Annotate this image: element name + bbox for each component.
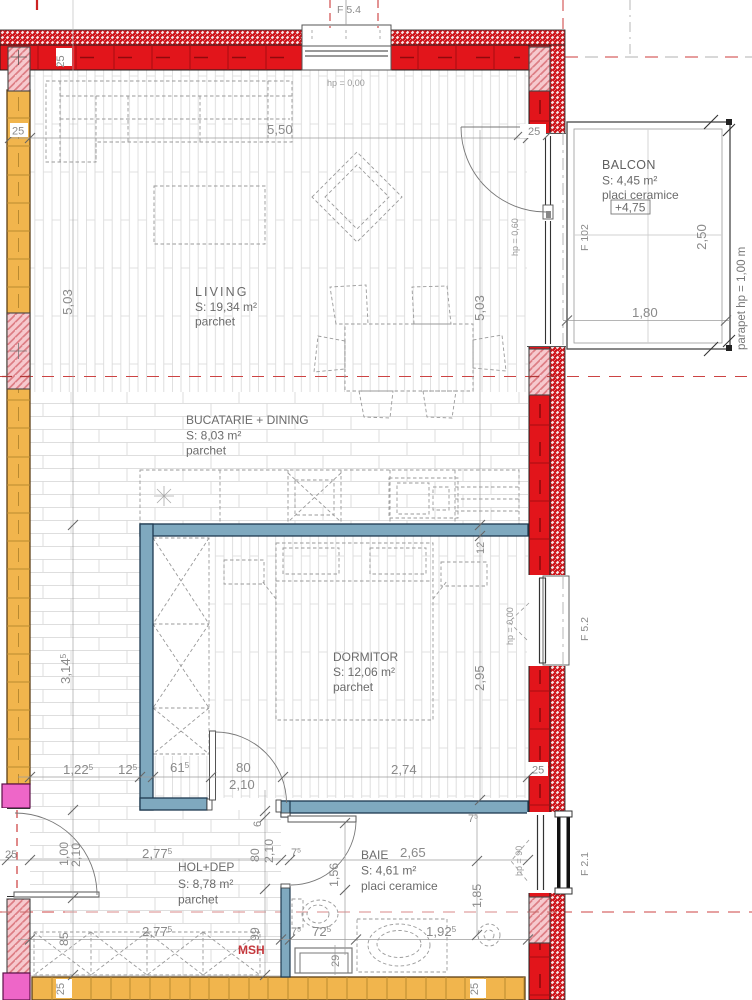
svg-text:placi ceramice: placi ceramice [361, 879, 438, 893]
svg-text:parchet: parchet [195, 315, 236, 329]
svg-text:6: 6 [252, 821, 264, 827]
svg-text:parchet: parchet [178, 893, 219, 907]
svg-text:2,10: 2,10 [262, 839, 276, 863]
svg-text:5,50: 5,50 [267, 122, 293, 137]
svg-text:+4,75: +4,75 [615, 201, 646, 215]
svg-text:2,65: 2,65 [400, 845, 426, 860]
svg-text:29: 29 [330, 955, 342, 967]
svg-text:F 2.1: F 2.1 [579, 852, 591, 876]
svg-text:DORMITOR: DORMITOR [333, 650, 398, 664]
svg-text:25: 25 [55, 983, 67, 995]
svg-text:F 5.4: F 5.4 [337, 4, 361, 16]
svg-text:S: 4,61 m²: S: 4,61 m² [361, 864, 416, 878]
svg-text:S: 8,03 m²: S: 8,03 m² [186, 429, 241, 443]
svg-text:2,74: 2,74 [391, 762, 417, 777]
svg-text:2,10: 2,10 [229, 777, 255, 792]
svg-text:2,95: 2,95 [472, 665, 487, 691]
svg-text:25: 25 [532, 765, 544, 777]
svg-text:25: 25 [5, 849, 17, 861]
svg-text:80: 80 [236, 760, 251, 775]
svg-text:F 5.2: F 5.2 [579, 617, 591, 641]
svg-text:25: 25 [528, 126, 540, 138]
svg-text:1,56: 1,56 [327, 863, 341, 887]
svg-text:hp = 0,00: hp = 0,00 [327, 78, 365, 88]
svg-text:1,80: 1,80 [632, 305, 658, 320]
svg-text:S: 19,34 m²: S: 19,34 m² [195, 300, 257, 314]
svg-text:hp = 0,00: hp = 0,00 [505, 607, 515, 645]
svg-text:1,85: 1,85 [470, 884, 484, 908]
svg-text:2,50: 2,50 [694, 224, 709, 250]
svg-text:LIVING: LIVING [195, 285, 249, 299]
svg-text:5,03: 5,03 [472, 295, 487, 321]
svg-text:parapet hp = 1,00 m: parapet hp = 1,00 m [736, 247, 748, 350]
svg-text:hp = 90: hp = 90 [514, 846, 524, 876]
svg-text:F 102: F 102 [579, 224, 591, 251]
svg-text:MSH: MSH [238, 943, 265, 957]
svg-text:BALCON: BALCON [602, 158, 656, 172]
svg-text:25: 25 [469, 983, 481, 995]
svg-text:parchet: parchet [186, 444, 227, 458]
svg-text:S: 4,45 m²: S: 4,45 m² [602, 174, 657, 188]
svg-text:25: 25 [55, 55, 67, 67]
svg-text:HOL+DEP: HOL+DEP [178, 860, 234, 874]
svg-text:25: 25 [12, 126, 24, 138]
svg-text:hp = 0,60: hp = 0,60 [510, 218, 520, 256]
svg-text:2,10: 2,10 [69, 843, 83, 867]
svg-text:12: 12 [475, 542, 487, 554]
svg-text:5,03: 5,03 [60, 289, 75, 315]
svg-text:85: 85 [57, 932, 71, 946]
svg-text:BUCATARIE + DINING: BUCATARIE + DINING [186, 413, 309, 427]
svg-text:S: 12,06 m²: S: 12,06 m² [333, 665, 395, 679]
svg-text:parchet: parchet [333, 680, 374, 694]
svg-text:99: 99 [248, 927, 262, 941]
svg-text:S: 8,78 m²: S: 8,78 m² [178, 877, 233, 891]
